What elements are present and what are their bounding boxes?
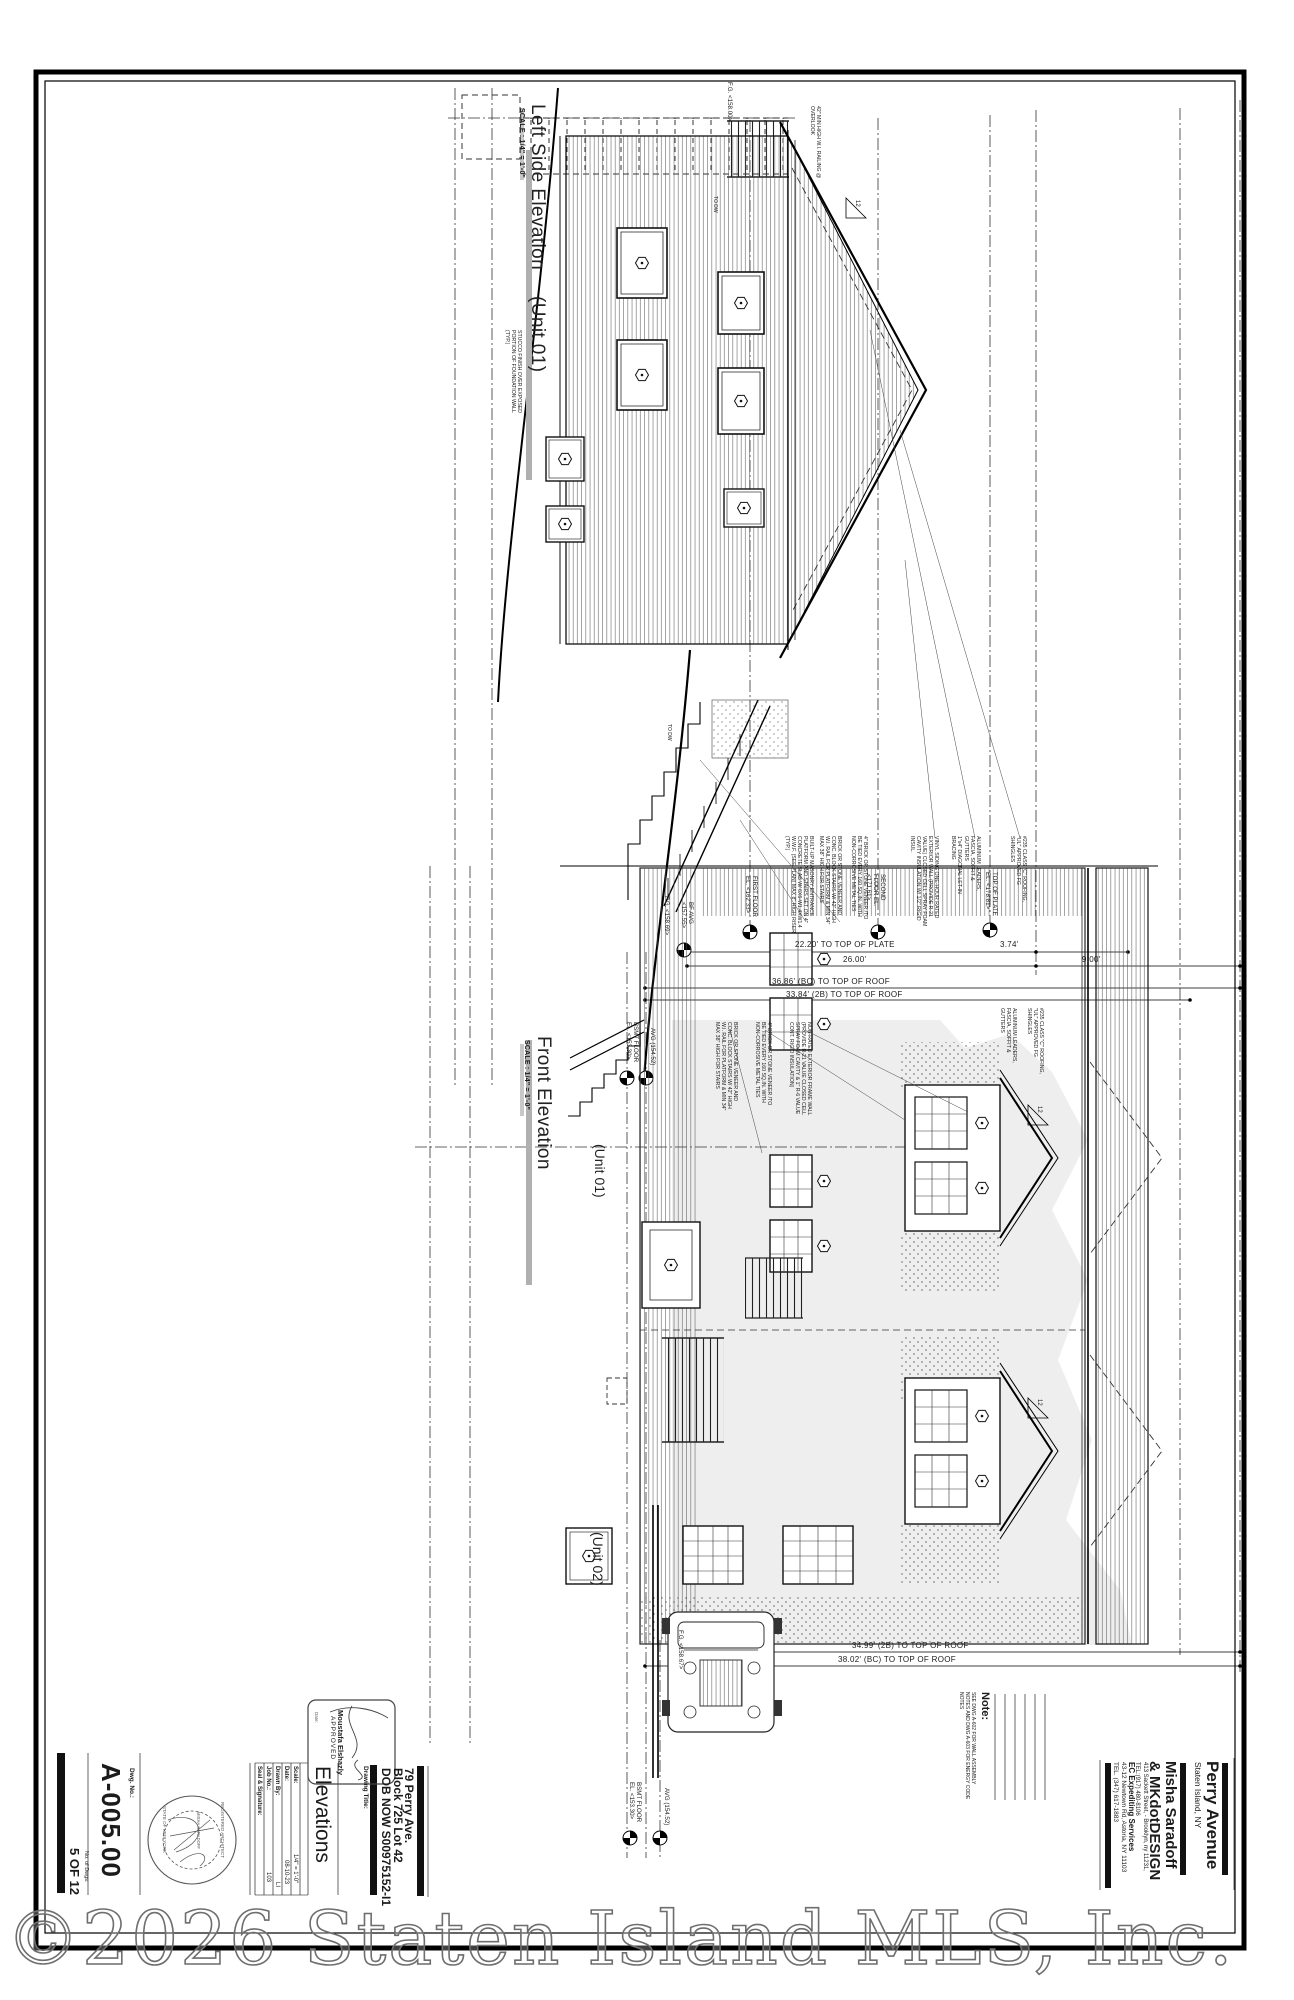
drawing-title-label: Drawing Title: xyxy=(361,1766,368,1809)
stamp-status: APPROVED xyxy=(328,1716,335,1760)
callout-masonry: BUILT-UP MASONRY ENTRANCE PLATFORM AND S… xyxy=(783,836,813,936)
callout-leaders-side: ALUMINUM LEADERS, FASCIA, SOFFIT & GUTTE… xyxy=(962,836,980,898)
scale-value: 1/4" = 1'-0" xyxy=(292,1854,298,1883)
note-text: SEE DWG A-602 FOR WALL ASSEMBLY NOTES AN… xyxy=(958,1692,976,1800)
seal-text-name: MISHA SARADOFF xyxy=(196,1812,200,1849)
level-avg-front: AVG (154.52) xyxy=(663,1788,670,1832)
slope-marker-bay2: 12 xyxy=(1036,1399,1042,1406)
titleblock-rules xyxy=(57,1694,1234,1897)
date-value: 08-10-23 xyxy=(283,1860,289,1884)
dwg-no: A-005.00 xyxy=(97,1763,124,1878)
callout-stucco: STUCCO FINISH OVER EXPOSED PORTION OF FO… xyxy=(503,330,521,418)
callout-leaders-front: ALUMINUM LEADERS, FASCIA, SOFFIT & GUTTE… xyxy=(998,1008,1016,1070)
callout-veneer-side: 4" BRICK OR STONE VENEER /TO BE TIED EVE… xyxy=(849,836,867,924)
front-elevation-unit2: (Unit 02) xyxy=(590,1532,605,1586)
dim-374: 3.74' xyxy=(1000,941,1019,949)
stamp-date-label: Date: xyxy=(313,1712,318,1723)
firm-name-2: & MKdotDESIGN xyxy=(1146,1761,1162,1880)
dim-900: 9.00' xyxy=(1082,956,1101,964)
left-elevation-title: Left Side Elevation xyxy=(527,104,547,270)
note-label: Note: xyxy=(978,1692,990,1720)
job-no-label: Job No.: xyxy=(265,1766,271,1790)
slope-marker-side: 12 xyxy=(854,200,860,207)
elevation-line-art xyxy=(0,0,1294,2000)
job-no-value: 103 xyxy=(265,1872,271,1882)
callout-frame-wall: NON-RATED EXTERIOR FRAME WALL (PROVIDE R… xyxy=(787,1022,811,1117)
scale-label: Scale: xyxy=(292,1766,298,1784)
level-fg-1: F.G. <158.69> xyxy=(663,896,670,936)
callout-railing: 42" MIN HIGH W.I. RAILING @ OVERLOOK xyxy=(808,106,820,182)
slope-marker-bay1: 12 xyxy=(1036,1106,1042,1113)
level-top-of-plate: TOP OF PLATE EL. <178.81> xyxy=(984,872,998,920)
drawn-by-label: Drawn By: xyxy=(274,1766,280,1796)
num-dwgs: 5 OF 12 xyxy=(67,1848,81,1895)
project-city: Staten Island, NY xyxy=(1193,1762,1202,1828)
left-elevation-scale: SCALE : 1/4" = 1'-0" xyxy=(518,108,525,178)
left-elevation-unit: (Unit 01) xyxy=(527,296,547,372)
dim-overall: 26.00' xyxy=(843,956,866,964)
num-dwgs-label: No. of Dwgs: xyxy=(82,1851,88,1882)
front-elevation-unit1: (Unit 01) xyxy=(592,1144,607,1198)
seal-text-state: STATE OF NEW YORK xyxy=(161,1806,166,1853)
dim-top-of-plate: 22.20' TO TOP OF PLATE xyxy=(795,941,895,949)
firm-name-1: Misha Saradoff xyxy=(1162,1761,1178,1869)
expediter-address: 43-12 Newtown Rd, Astoria, NY 11103 xyxy=(1119,1762,1126,1872)
firm-address: 413 Sackett Street, - Brooklyn, ny 11231… xyxy=(1142,1762,1148,1871)
level-fg-top: F.G. <158.00> xyxy=(726,82,733,122)
dim-front-bc: 38.02' (BC) TO TOP OF ROOF xyxy=(838,1656,956,1664)
callout-to-dw-1: TO DW xyxy=(666,724,671,741)
drawing-sheet: Left Side Elevation (Unit 01) SCALE : 1/… xyxy=(0,0,1294,2000)
level-bsmt-side: BSMT FLOOR EL. <153.30> xyxy=(625,1022,639,1066)
front-elevation-scale: SCALE : 1/4" = 1'-0" xyxy=(523,1040,530,1110)
dim-bc-roof: 36.86' (BC) TO TOP OF ROOF xyxy=(772,978,890,986)
drawn-by-value: LI xyxy=(274,1882,280,1887)
dim-front-2b: 34.99' (2B) TO TOP OF ROOF xyxy=(852,1642,969,1650)
level-bsmt-front: BSMT FLOOR EL. <153.30> xyxy=(628,1782,642,1826)
level-fg-2: F.G. <158.67> xyxy=(677,1630,684,1670)
stamp-name: Moustafa Elshazly xyxy=(336,1710,344,1775)
firm-phone: TEL:(917) 480-8106 xyxy=(1134,1762,1140,1816)
project-name: Perry Avenue xyxy=(1203,1761,1221,1869)
dwg-no-label: Dwg. No.: xyxy=(127,1768,134,1798)
mls-watermark: ©2026 Staten Island MLS, Inc. xyxy=(6,1896,1235,1982)
callout-siding: VINYL SIDING ONE-HOUR RATED EXTERIOR WAL… xyxy=(908,836,938,931)
date-label: Date: xyxy=(283,1766,289,1781)
project-dob: DOB NOW S00975152-I1 xyxy=(379,1768,392,1906)
callout-roofing-front: #235 CLASS "C" ROOFING, "UL" APPROVED FG… xyxy=(1025,1008,1043,1076)
level-avg-side: AVG (154.52) xyxy=(649,1028,656,1072)
dim-2b-roof: 33.84' (2B) TO TOP OF ROOF xyxy=(786,991,903,999)
expediter-phone: TEL. (347) 617-1883 xyxy=(1111,1762,1118,1822)
front-elevation-title: Front Elevation xyxy=(533,1036,553,1170)
callout-roofing-side: #235 CLASS "C" ROOFING, "UL" APPROVED FG… xyxy=(1008,836,1026,904)
callout-veneer-front: 4" BRICK OR STONE VENEER /TO BE TIED EVE… xyxy=(753,1022,771,1110)
seal-signature-label: Seal & Signature: xyxy=(256,1766,262,1816)
callout-bracing: 1"x4" DIAGONAL LET-IN BRACING xyxy=(949,836,961,906)
level-first-floor: FIRST FLOOR EL. <162.33> xyxy=(744,876,758,924)
level-bf-avg: BF AVG <157.55> xyxy=(680,902,694,946)
drawing-title: Elevations xyxy=(311,1766,333,1863)
callout-to-dw-2: TO DW xyxy=(712,196,717,213)
seal-text-registered: REGISTERED ARCHITECT xyxy=(219,1802,224,1858)
project-block-lot: Block 725 Lot 42 xyxy=(391,1768,404,1863)
callout-stairs-side: BRICK OR STONE VENEER AND CONC. BLOCK ST… xyxy=(817,836,841,928)
callout-stairs-front: BRICK OR STONE VENEER AND CONC. BLOCK ST… xyxy=(713,1022,737,1114)
